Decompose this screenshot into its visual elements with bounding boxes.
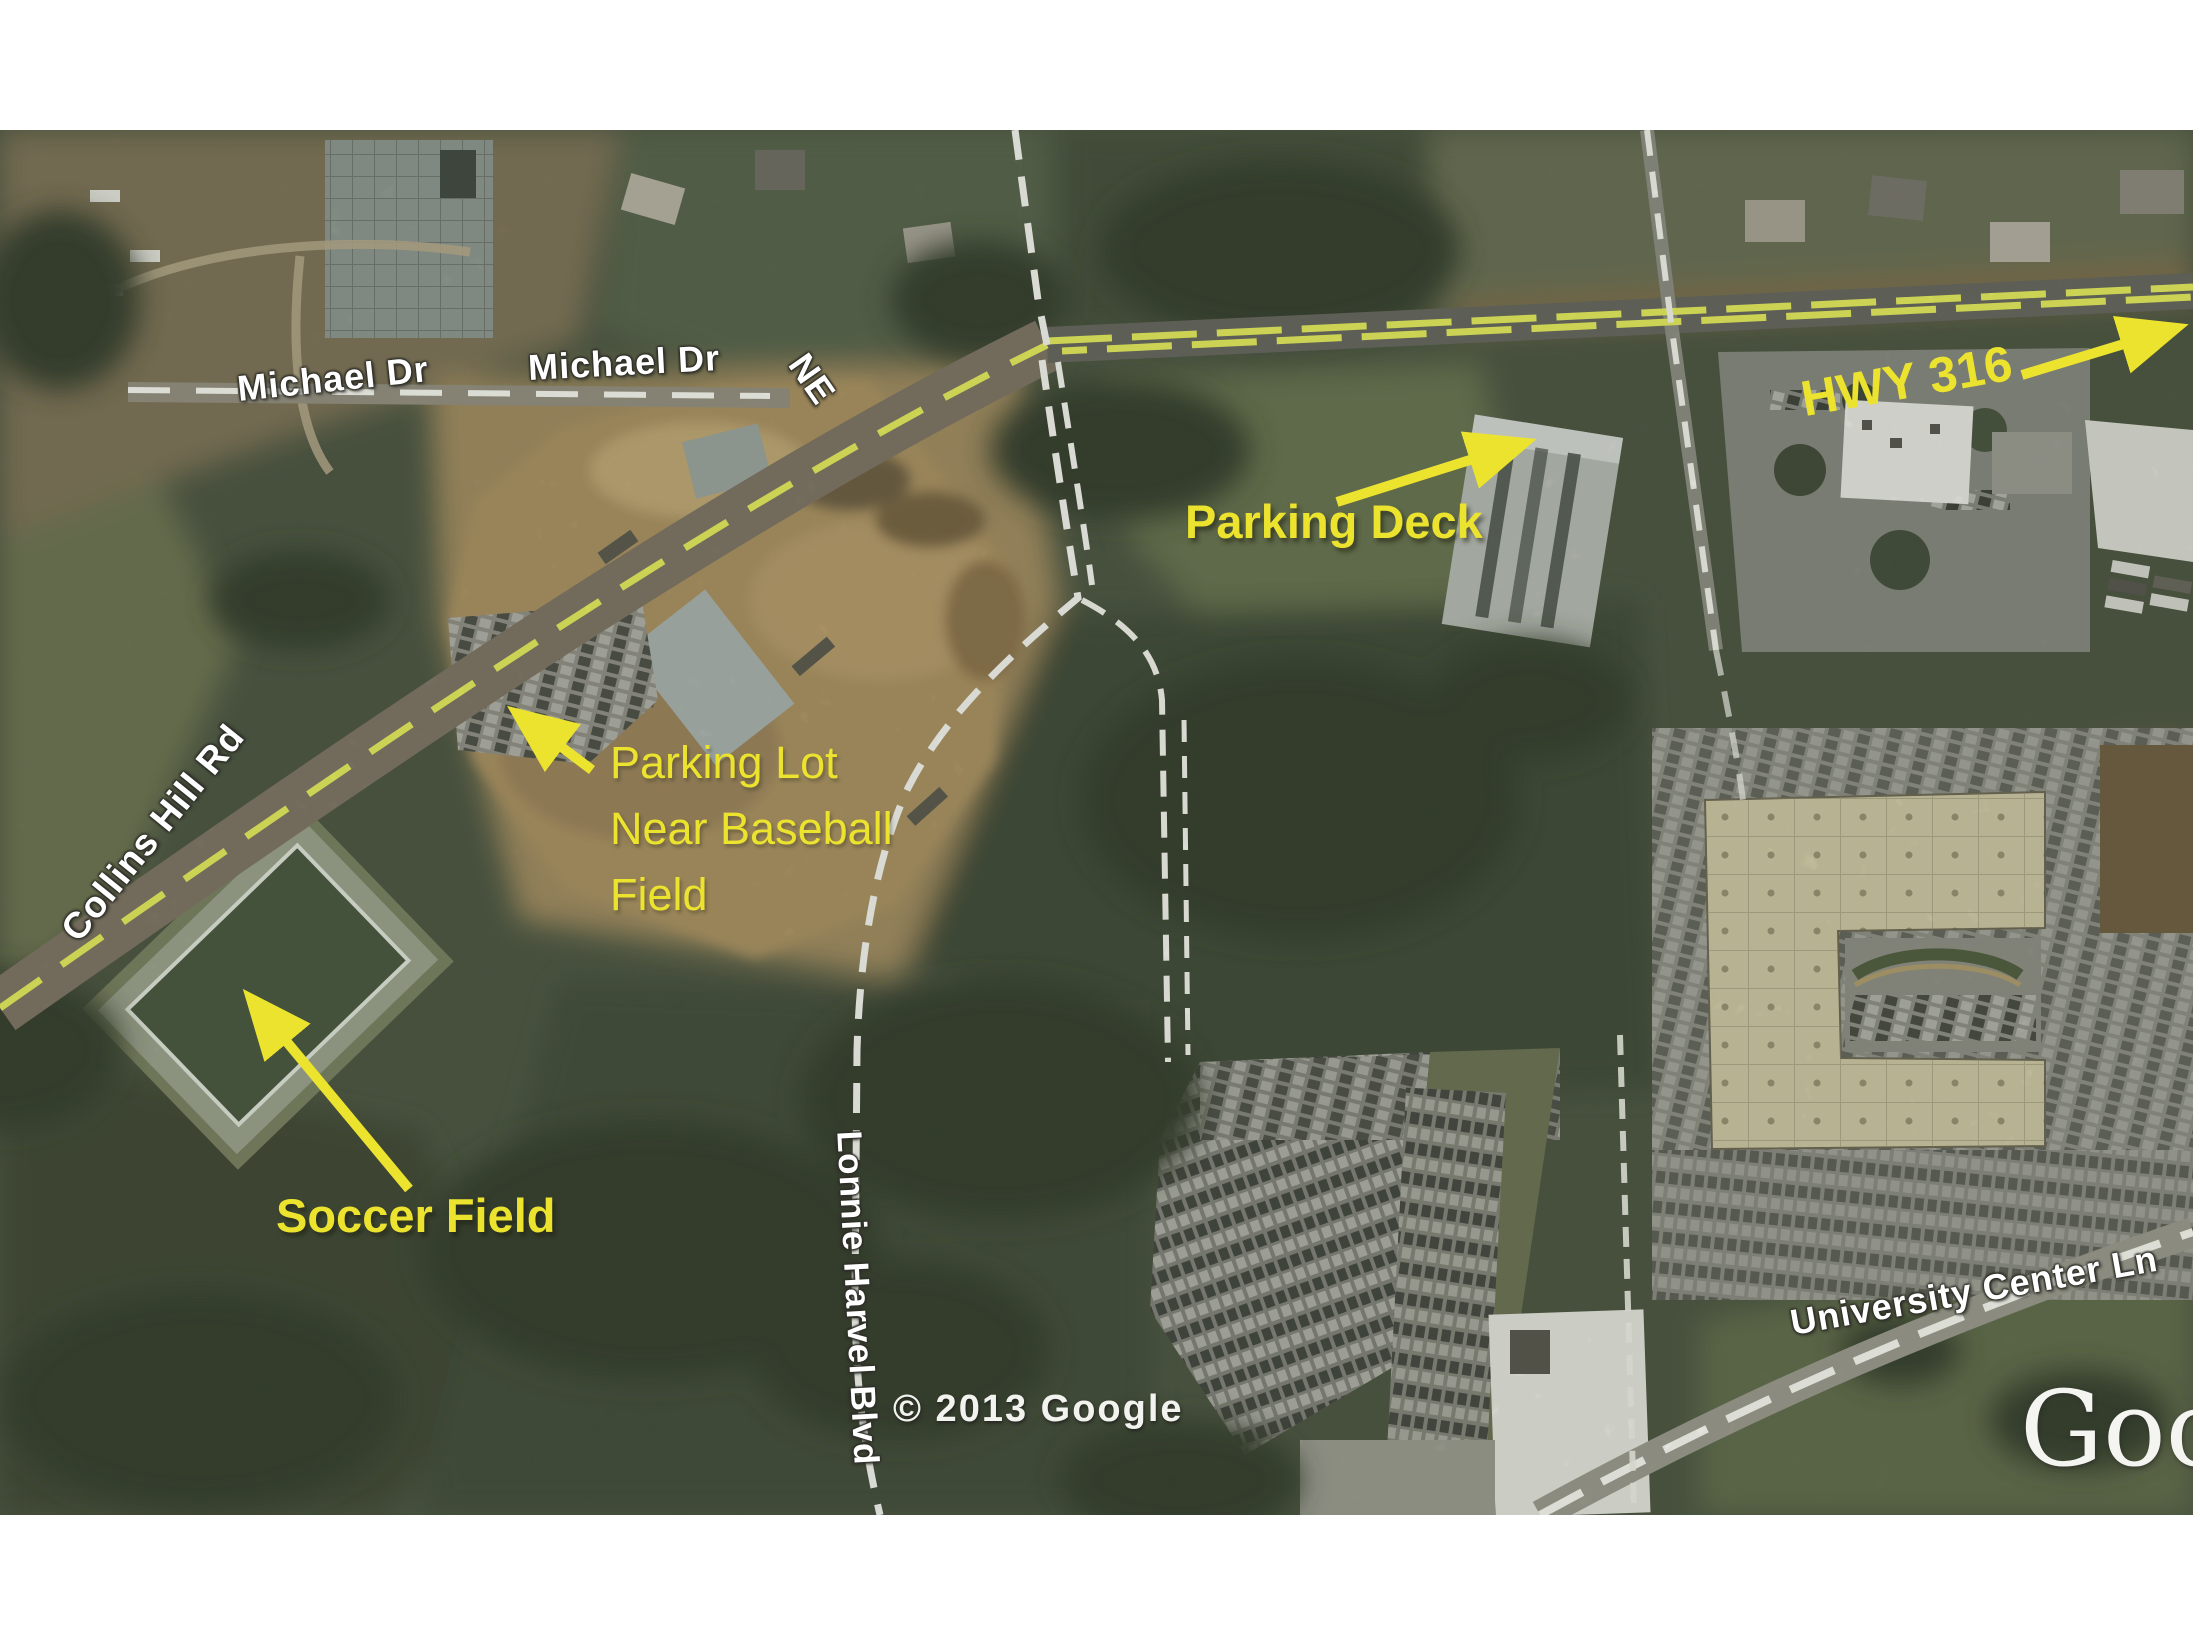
slide-page: Michael Dr Michael Dr NE Collins Hill Rd… — [0, 0, 2200, 1650]
callout-parking-deck: Parking Deck — [1185, 498, 1483, 545]
callout-soccer-field: Soccer Field — [276, 1192, 556, 1239]
callout-parking-lot-line2: Near Baseball — [610, 796, 893, 862]
hwy-316-arrow — [2022, 333, 2160, 375]
callout-parking-lot-line3: Field — [610, 862, 893, 928]
satellite-map: Michael Dr Michael Dr NE Collins Hill Rd… — [0, 130, 2193, 1515]
google-watermark: Google — [2020, 1368, 2193, 1490]
callout-parking-lot: Parking Lot Near Baseball Field — [610, 730, 893, 928]
soccer-field-arrow — [262, 1012, 409, 1189]
parking-lot-arrow — [531, 724, 592, 770]
parking-deck-arrow — [1337, 448, 1508, 502]
callout-parking-lot-line1: Parking Lot — [610, 730, 893, 796]
copyright-attribution: © 2013 Google — [893, 1388, 1184, 1431]
